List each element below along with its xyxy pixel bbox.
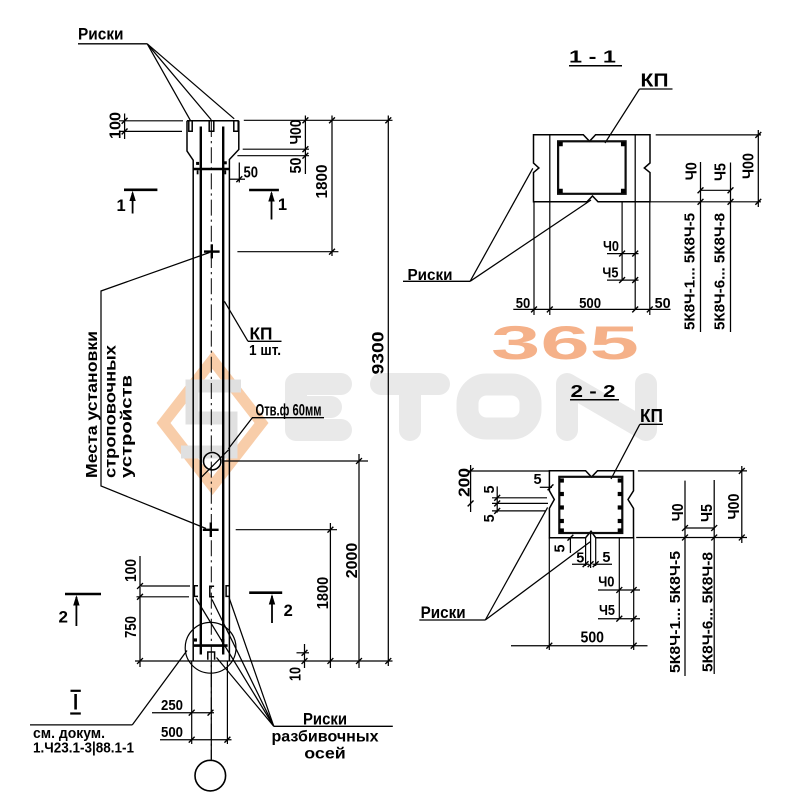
svg-text:250: 250 <box>161 697 183 714</box>
svg-text:1 - 1: 1 - 1 <box>569 47 616 67</box>
svg-text:5К8Ч-6... 5К8Ч-8: 5К8Ч-6... 5К8Ч-8 <box>712 213 729 330</box>
svg-text:Ч0: Ч0 <box>603 239 619 255</box>
svg-text:2 - 2: 2 - 2 <box>571 381 616 401</box>
svg-text:КП: КП <box>250 324 273 344</box>
svg-text:Ч0: Ч0 <box>598 575 614 591</box>
svg-text:Риски: Риски <box>421 604 466 622</box>
svg-text:Ч5: Ч5 <box>602 266 618 282</box>
svg-text:50: 50 <box>516 295 531 312</box>
svg-text:5: 5 <box>576 551 584 567</box>
svg-text:100: 100 <box>108 112 125 139</box>
svg-text:Ч00: Ч00 <box>726 494 743 520</box>
svg-text:осей: осей <box>304 746 346 763</box>
svg-text:КП: КП <box>640 405 663 426</box>
svg-text:устройств: устройств <box>119 375 136 478</box>
svg-text:2: 2 <box>59 608 68 627</box>
svg-text:50: 50 <box>244 165 259 182</box>
svg-text:Ч00: Ч00 <box>741 153 758 179</box>
svg-text:365: 365 <box>491 316 639 369</box>
svg-text:2: 2 <box>284 602 293 620</box>
svg-text:1800: 1800 <box>314 165 331 199</box>
svg-text:5: 5 <box>482 514 498 522</box>
svg-text:1: 1 <box>117 197 126 215</box>
svg-text:1: 1 <box>278 196 287 214</box>
svg-text:КП: КП <box>641 70 669 91</box>
svg-text:Ч00: Ч00 <box>288 120 305 145</box>
svg-text:500: 500 <box>581 630 605 647</box>
svg-text:50: 50 <box>288 158 305 174</box>
svg-text:2000: 2000 <box>344 543 361 579</box>
svg-text:500: 500 <box>161 724 183 741</box>
svg-text:100: 100 <box>123 559 140 582</box>
svg-text:Ч0: Ч0 <box>684 162 701 180</box>
svg-text:750: 750 <box>123 616 140 638</box>
svg-text:1800: 1800 <box>315 577 332 610</box>
svg-text:Отв.ф 60мм: Отв.ф 60мм <box>256 402 322 420</box>
svg-text:строповочных: строповочных <box>103 345 120 478</box>
svg-text:5К8Ч-6... 5К8Ч-8: 5К8Ч-6... 5К8Ч-8 <box>699 552 716 672</box>
svg-text:500: 500 <box>579 295 601 312</box>
svg-text:Места установки: Места установки <box>84 331 101 478</box>
svg-text:9300: 9300 <box>370 332 388 375</box>
svg-text:10: 10 <box>288 667 305 681</box>
svg-text:Ч5: Ч5 <box>699 504 716 522</box>
svg-text:Риски: Риски <box>78 25 124 44</box>
svg-text:Ч0: Ч0 <box>670 503 687 521</box>
svg-text:5: 5 <box>534 472 542 488</box>
svg-text:Ч5: Ч5 <box>599 603 615 619</box>
svg-text:5: 5 <box>602 550 610 566</box>
svg-text:1.Ч23.1-3|88.1-1: 1.Ч23.1-3|88.1-1 <box>33 740 134 757</box>
svg-text:1 шт.: 1 шт. <box>249 342 281 359</box>
svg-text:разбивочных: разбивочных <box>272 729 379 746</box>
svg-text:5К8Ч-1... 5К8Ч-5: 5К8Ч-1... 5К8Ч-5 <box>682 213 699 330</box>
svg-text:5К8Ч-1... 5К8Ч-5: 5К8Ч-1... 5К8Ч-5 <box>667 551 684 673</box>
svg-text:Ч5: Ч5 <box>713 163 730 181</box>
svg-text:5: 5 <box>482 485 498 493</box>
svg-text:5: 5 <box>553 544 569 552</box>
svg-text:50: 50 <box>655 295 671 312</box>
